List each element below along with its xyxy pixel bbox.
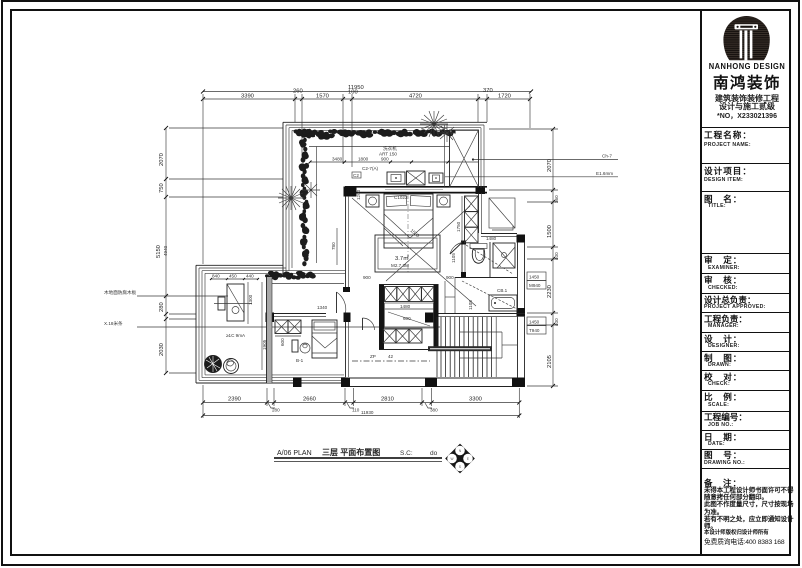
svg-text:木地面防腐木板: 木地面防腐木板 bbox=[104, 289, 137, 296]
svg-text:2070: 2070 bbox=[547, 159, 553, 172]
svg-text:600: 600 bbox=[280, 338, 285, 346]
svg-text:450: 450 bbox=[229, 274, 237, 279]
svg-text:1500: 1500 bbox=[547, 225, 553, 238]
svg-text:440: 440 bbox=[246, 274, 254, 279]
svg-text:S: S bbox=[459, 465, 461, 469]
svg-text:1450: 1450 bbox=[529, 320, 540, 325]
svg-text:CB.1: CB.1 bbox=[497, 288, 508, 293]
svg-text:42: 42 bbox=[388, 354, 394, 359]
svg-text:1905: 1905 bbox=[262, 339, 267, 350]
svg-text:100: 100 bbox=[348, 90, 358, 96]
svg-text:750: 750 bbox=[159, 183, 165, 193]
svg-text:≥1C 9mA: ≥1C 9mA bbox=[226, 333, 246, 338]
svg-text:900: 900 bbox=[363, 275, 371, 280]
svg-text:3390: 3390 bbox=[241, 94, 254, 100]
svg-text:280: 280 bbox=[159, 302, 165, 312]
svg-text:2660: 2660 bbox=[303, 397, 316, 403]
svg-text:C2-7(A): C2-7(A) bbox=[362, 166, 379, 171]
svg-text:B-1: B-1 bbox=[296, 358, 304, 363]
svg-text:4720: 4720 bbox=[409, 94, 422, 100]
svg-text:1105: 1105 bbox=[451, 253, 456, 263]
svg-text:5150: 5150 bbox=[156, 245, 162, 258]
svg-text:M2.7.3M: M2.7.3M bbox=[391, 263, 409, 268]
svg-text:X.18米条: X.18米条 bbox=[104, 320, 123, 327]
svg-text:1340: 1340 bbox=[317, 305, 328, 310]
svg-text:3.7㎡: 3.7㎡ bbox=[395, 254, 409, 262]
svg-text:2390: 2390 bbox=[228, 397, 241, 403]
svg-text:2030: 2030 bbox=[159, 343, 165, 356]
svg-text:do: do bbox=[430, 450, 438, 457]
svg-text:S.C:: S.C: bbox=[400, 450, 413, 457]
svg-text:1570: 1570 bbox=[316, 94, 329, 100]
svg-text:C2: C2 bbox=[353, 173, 359, 178]
svg-text:1720: 1720 bbox=[498, 94, 511, 100]
svg-text:T940: T940 bbox=[529, 328, 540, 333]
svg-text:三层 平面布置图: 三层 平面布置图 bbox=[322, 447, 380, 457]
svg-text:M940: M940 bbox=[529, 283, 541, 288]
svg-text:3300: 3300 bbox=[469, 397, 482, 403]
svg-text:2105: 2105 bbox=[547, 355, 553, 368]
svg-text:E: E bbox=[467, 457, 469, 461]
svg-text:W: W bbox=[450, 457, 453, 461]
svg-text:A/06 PLAN: A/06 PLAN bbox=[277, 450, 312, 457]
svg-text:2230: 2230 bbox=[547, 285, 553, 298]
svg-text:370: 370 bbox=[483, 88, 493, 94]
svg-text:900: 900 bbox=[381, 157, 389, 162]
svg-text:E1.6mm: E1.6mm bbox=[596, 171, 613, 176]
svg-text:ZP: ZP bbox=[370, 354, 376, 359]
svg-text:C1022: C1022 bbox=[394, 195, 408, 200]
svg-text:1300: 1300 bbox=[248, 294, 253, 305]
svg-text:2070: 2070 bbox=[159, 153, 165, 166]
svg-text:11930: 11930 bbox=[361, 410, 374, 415]
svg-text:2810: 2810 bbox=[381, 397, 394, 403]
svg-text:4940: 4940 bbox=[163, 245, 168, 256]
svg-text:1450: 1450 bbox=[529, 275, 540, 280]
svg-text:Ch-7: Ch-7 bbox=[602, 154, 612, 159]
svg-text:1750: 1750 bbox=[456, 221, 461, 232]
svg-text:840: 840 bbox=[212, 274, 220, 279]
svg-text:1480: 1480 bbox=[486, 236, 497, 241]
svg-text:3480: 3480 bbox=[332, 157, 343, 162]
svg-text:ART 150: ART 150 bbox=[379, 152, 397, 157]
svg-text:1200: 1200 bbox=[356, 189, 361, 200]
svg-text:900: 900 bbox=[446, 275, 454, 280]
svg-text:1800: 1800 bbox=[358, 157, 369, 162]
svg-text:780: 780 bbox=[331, 242, 336, 250]
svg-text:260: 260 bbox=[293, 89, 303, 95]
svg-text:1480: 1480 bbox=[400, 304, 411, 309]
svg-text:1105: 1105 bbox=[468, 300, 473, 310]
